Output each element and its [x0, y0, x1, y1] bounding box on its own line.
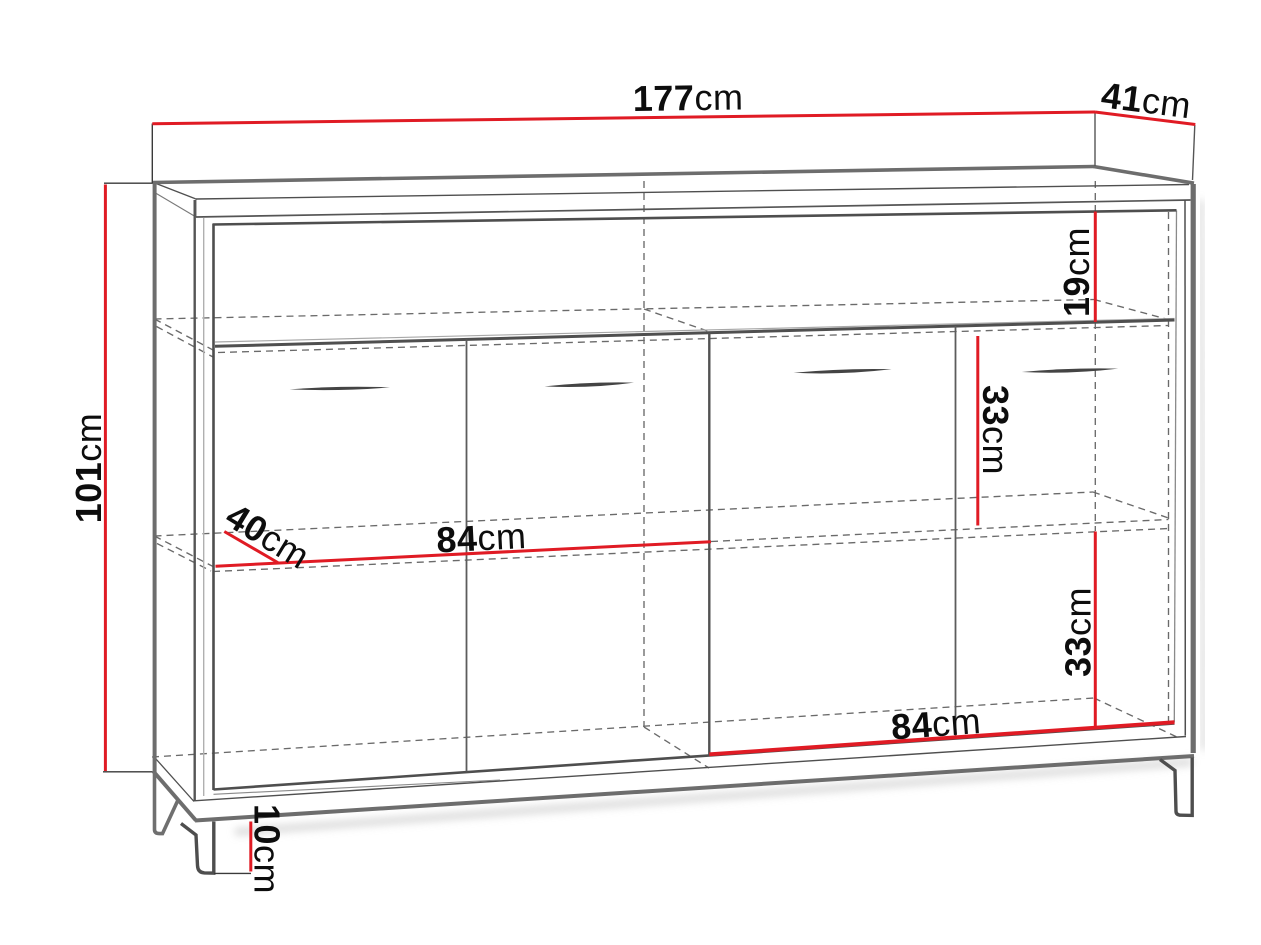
svg-text:84cm: 84cm	[890, 700, 983, 747]
svg-text:33cm: 33cm	[1058, 587, 1099, 677]
svg-text:101cm: 101cm	[68, 413, 109, 524]
svg-text:33cm: 33cm	[975, 385, 1016, 475]
svg-text:19cm: 19cm	[1056, 227, 1097, 317]
svg-text:177cm: 177cm	[633, 76, 744, 119]
svg-text:84cm: 84cm	[435, 515, 527, 561]
svg-text:10cm: 10cm	[247, 804, 288, 894]
